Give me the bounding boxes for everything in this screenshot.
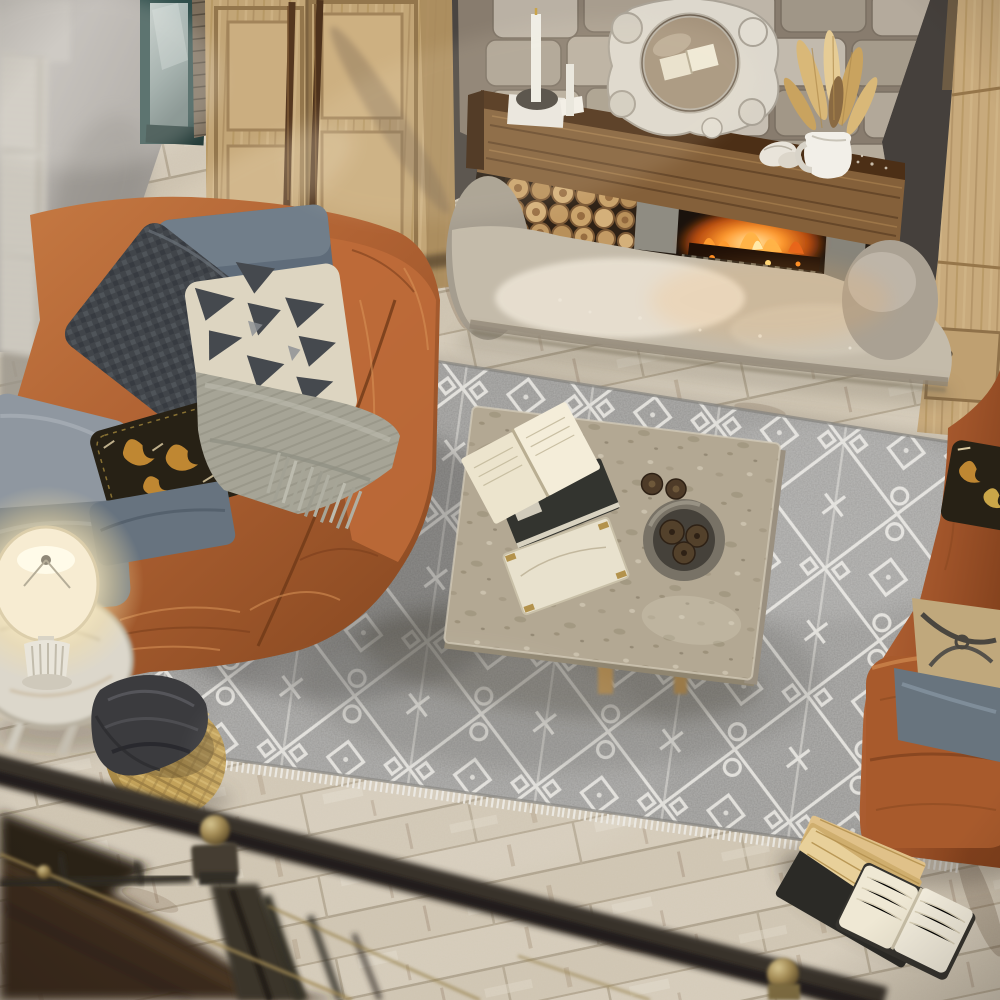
scene-canvas (0, 0, 1000, 1000)
living-room-photo: Overhead view of a rustic living room: g… (0, 0, 1000, 1000)
vignette (0, 0, 1000, 1000)
